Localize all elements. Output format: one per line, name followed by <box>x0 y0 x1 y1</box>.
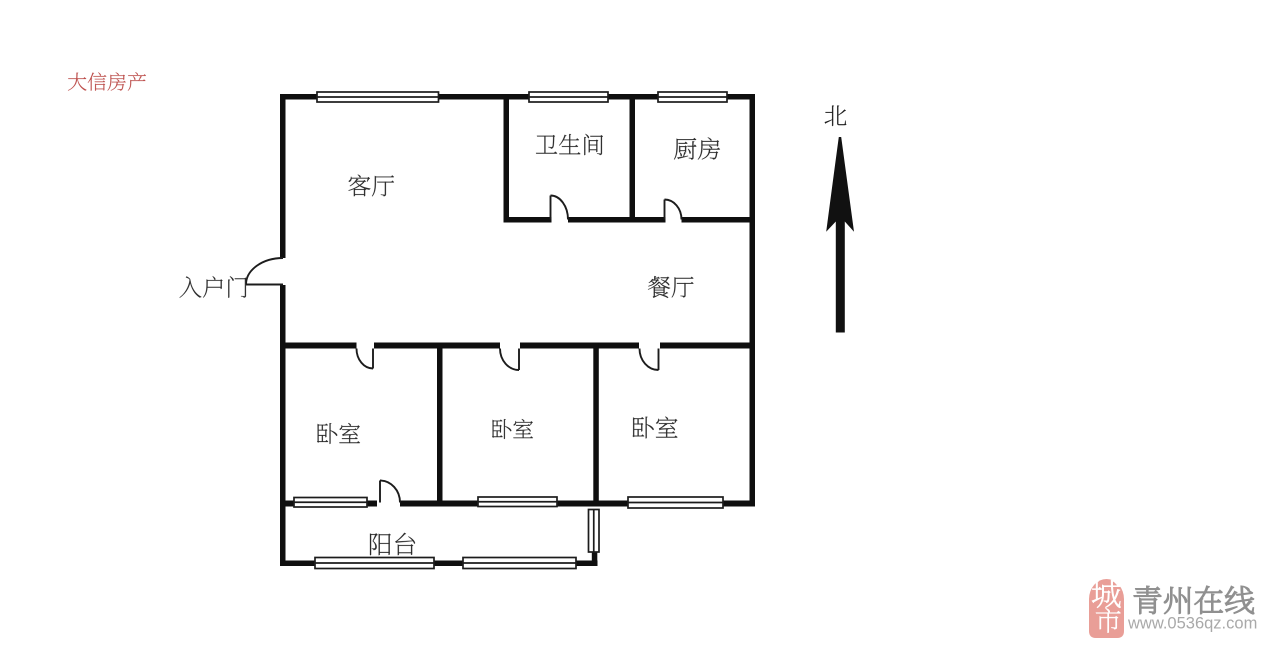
svg-text:www.0536qz.com: www.0536qz.com <box>1127 615 1257 633</box>
